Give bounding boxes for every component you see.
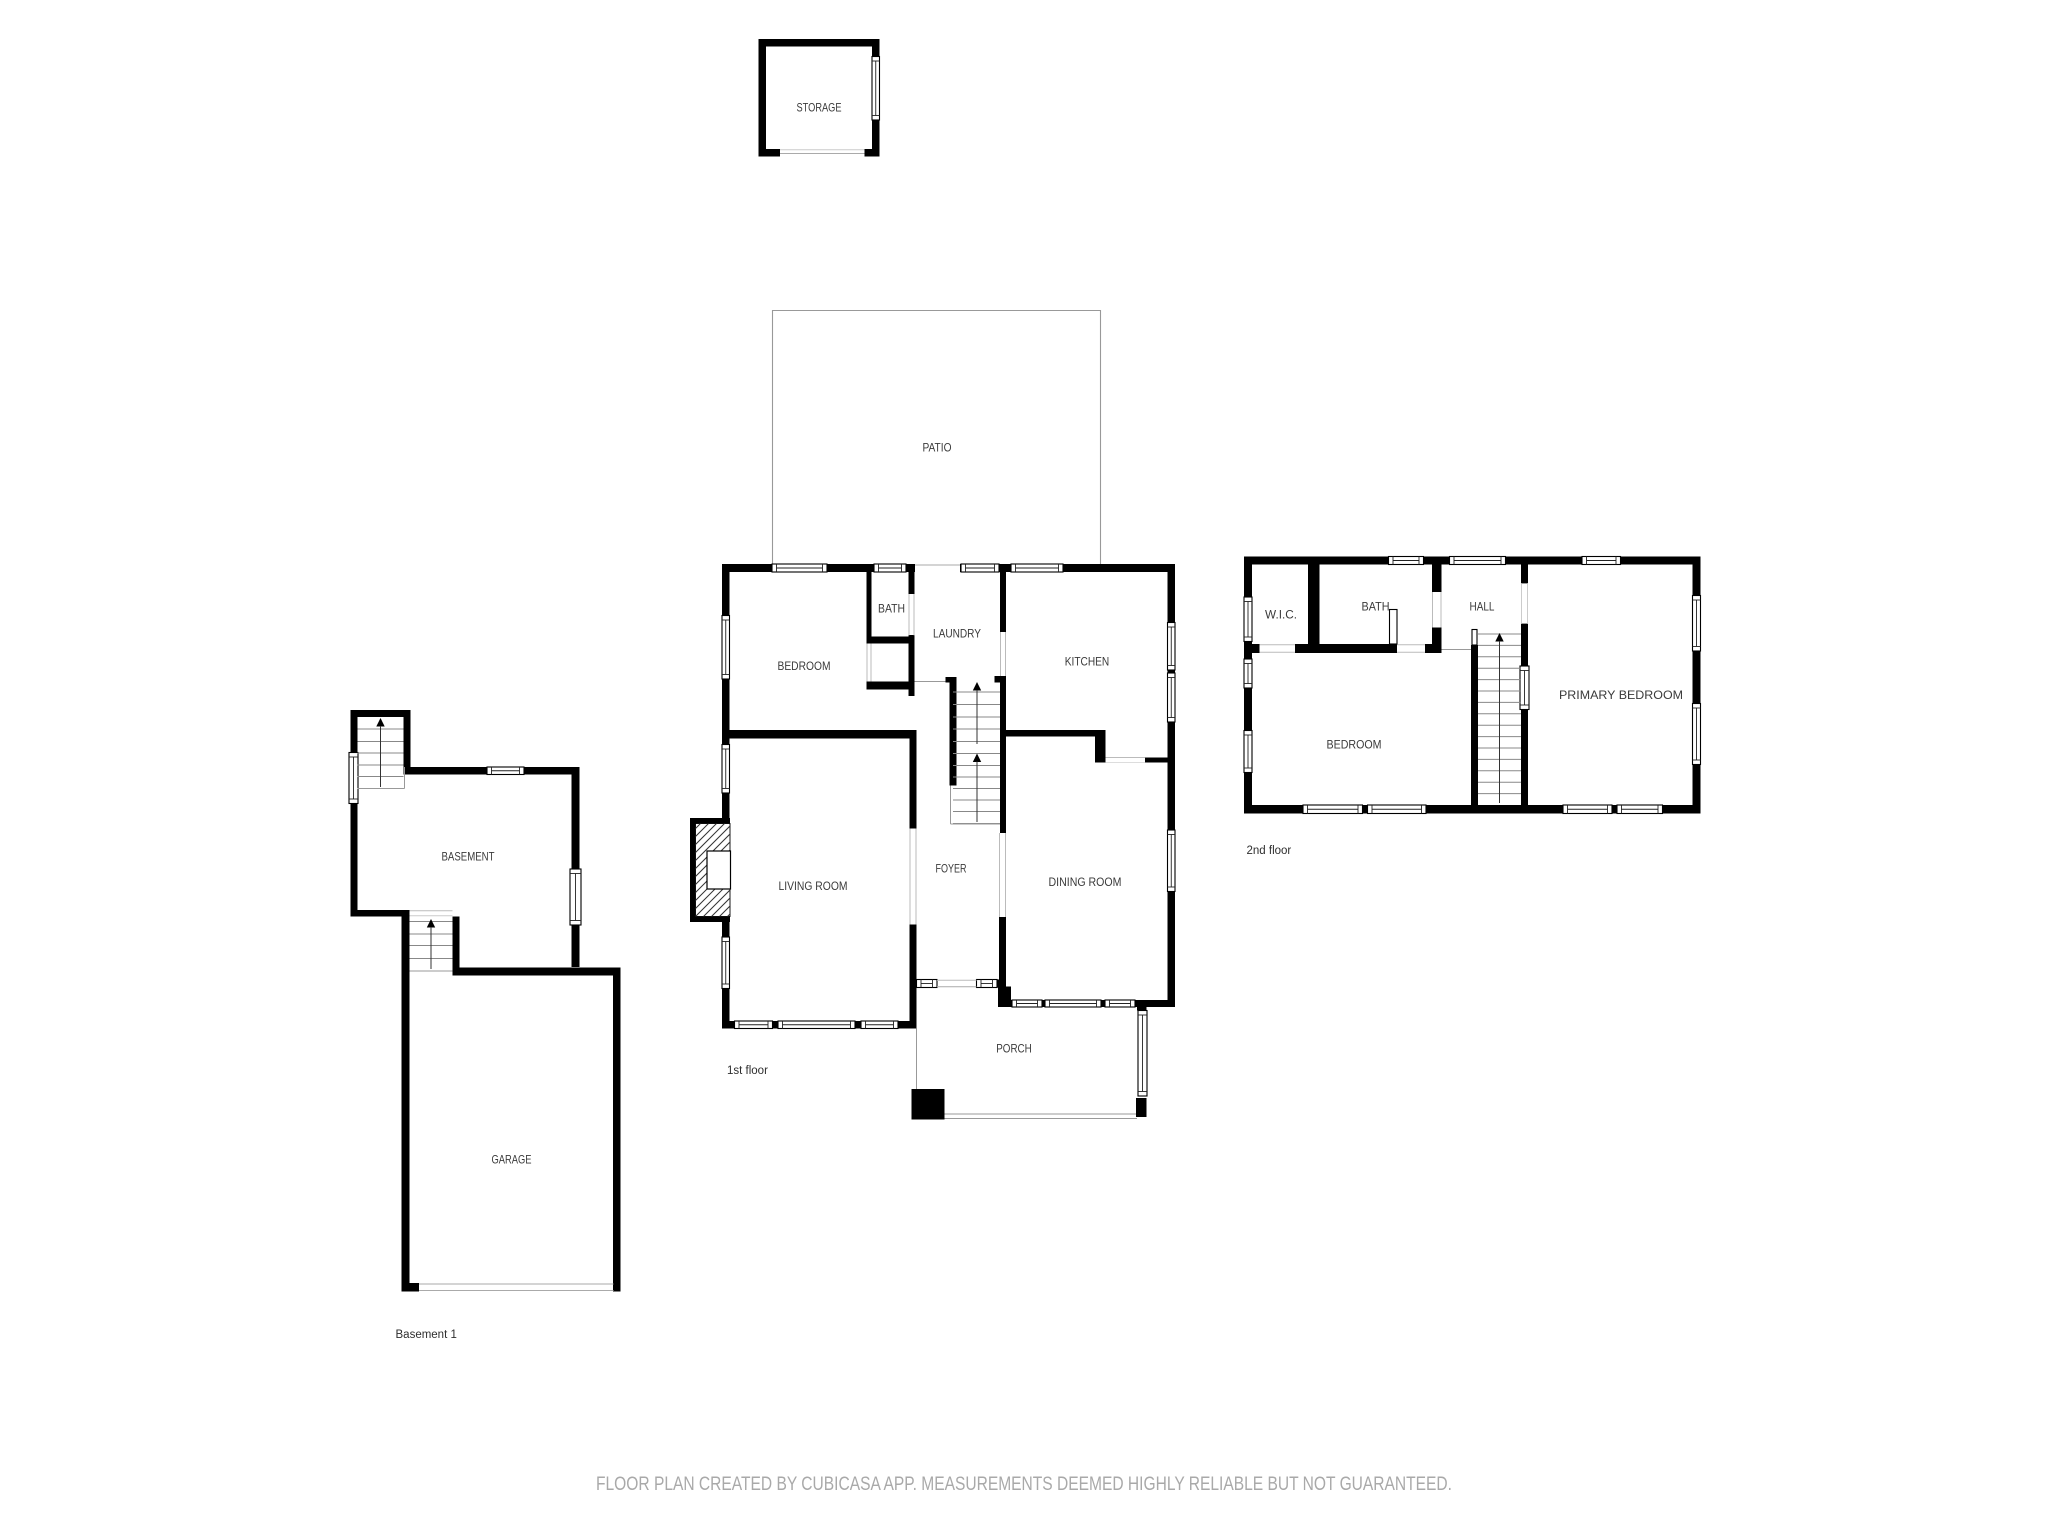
- svg-text:DINING ROOM: DINING ROOM: [1049, 875, 1122, 889]
- svg-text:HALL: HALL: [1470, 599, 1495, 613]
- svg-text:GARAGE: GARAGE: [492, 1152, 532, 1166]
- svg-text:BATH: BATH: [1362, 599, 1390, 613]
- svg-text:1st floor: 1st floor: [727, 1065, 768, 1077]
- svg-text:STORAGE: STORAGE: [797, 100, 842, 114]
- svg-text:BATH: BATH: [878, 601, 905, 615]
- svg-text:PATIO: PATIO: [923, 440, 952, 454]
- svg-text:BEDROOM: BEDROOM: [1327, 737, 1382, 751]
- svg-text:FOYER: FOYER: [936, 861, 967, 875]
- svg-text:W.I.C.: W.I.C.: [1265, 607, 1297, 621]
- svg-text:PORCH: PORCH: [996, 1041, 1032, 1055]
- svg-text:FLOOR PLAN CREATED BY CUBICASA: FLOOR PLAN CREATED BY CUBICASA APP. MEAS…: [596, 1473, 1452, 1495]
- svg-text:BASEMENT: BASEMENT: [442, 849, 496, 863]
- svg-text:LIVING ROOM: LIVING ROOM: [779, 879, 848, 893]
- svg-text:2nd floor: 2nd floor: [1247, 845, 1292, 857]
- svg-text:BEDROOM: BEDROOM: [778, 659, 831, 673]
- svg-text:LAUNDRY: LAUNDRY: [933, 626, 981, 640]
- svg-text:Basement 1: Basement 1: [396, 1329, 457, 1341]
- svg-text:PRIMARY BEDROOM: PRIMARY BEDROOM: [1559, 688, 1683, 702]
- svg-text:KITCHEN: KITCHEN: [1065, 654, 1110, 668]
